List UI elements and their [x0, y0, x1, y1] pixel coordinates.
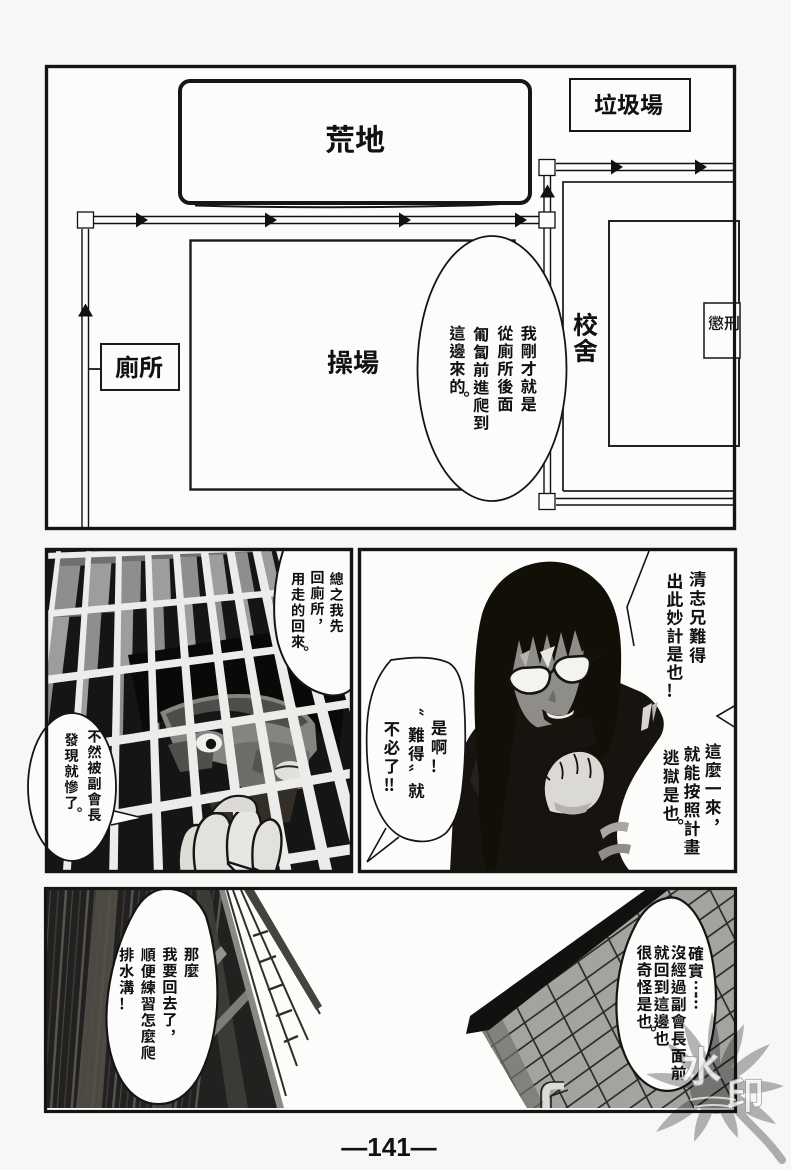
svg-text:—141—: —141— [341, 1132, 436, 1162]
